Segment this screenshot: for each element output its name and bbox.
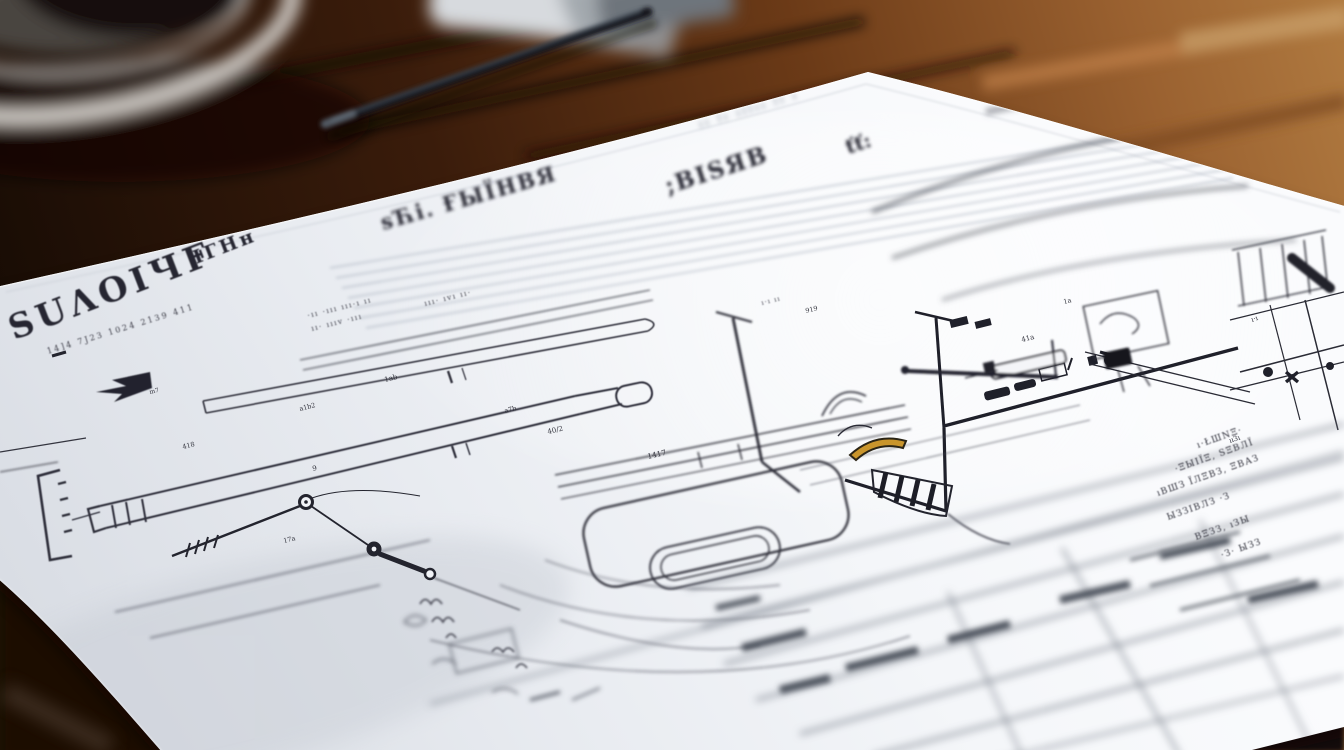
key-pin-loop: [425, 569, 435, 579]
ring-node-center: [304, 500, 308, 504]
photo-scene: SUΛOIЧF ІГНн 14]4 7J23 1024 2139 411 ѕЋі…: [0, 0, 1344, 750]
scene-canvas: SUΛOIЧF ІГНн 14]4 7J23 1024 2139 411 ѕЋі…: [0, 0, 1344, 750]
key-pin-hole: [372, 547, 377, 552]
